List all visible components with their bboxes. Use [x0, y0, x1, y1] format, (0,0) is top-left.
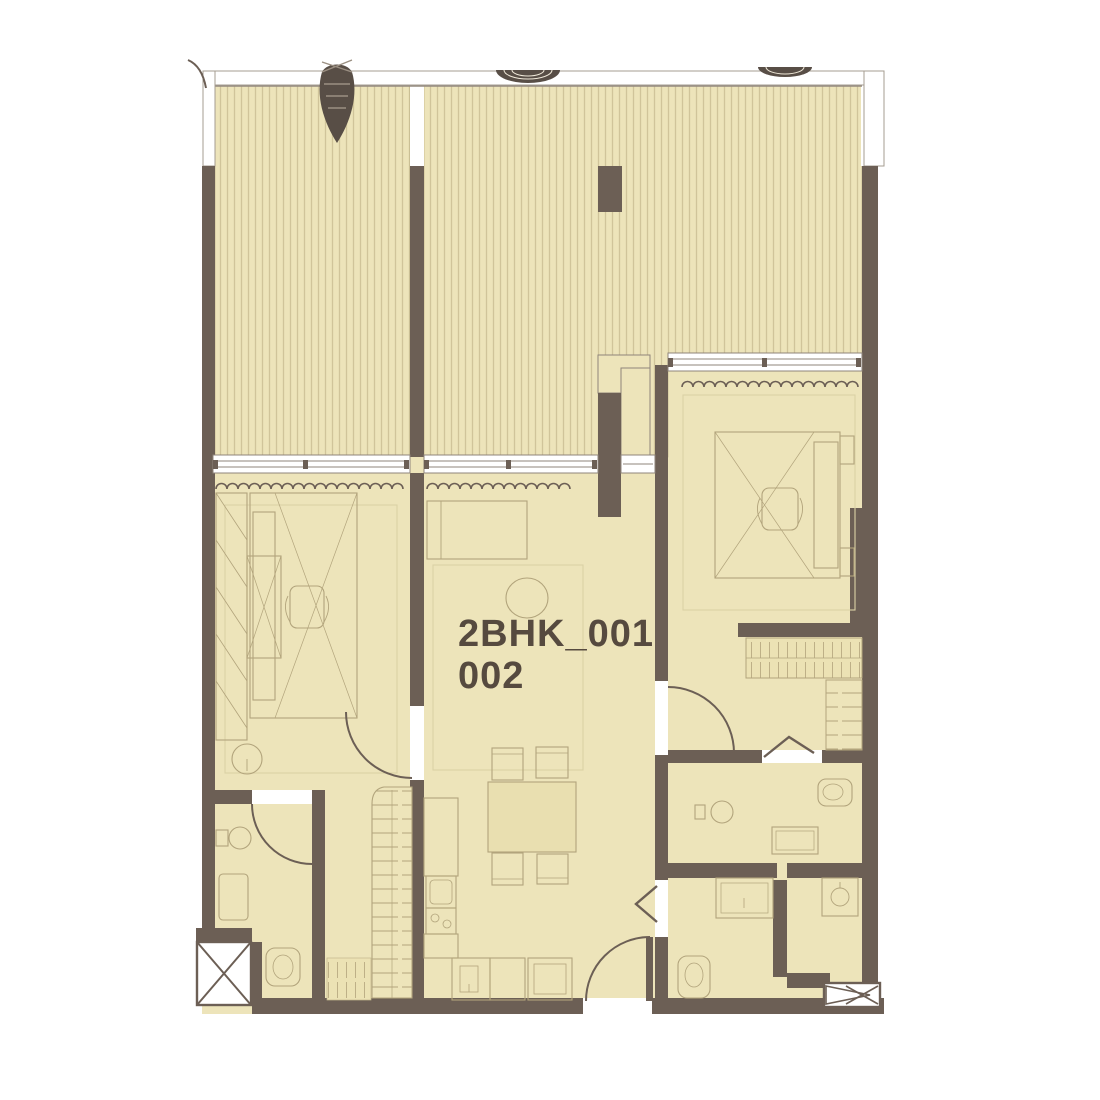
door-entrance-opening — [583, 998, 652, 1014]
door-bath-left-opening — [252, 790, 312, 804]
wall-bedroom1-upper — [410, 473, 424, 708]
wall-bath-master-bottom-right — [787, 863, 862, 878]
wall-balcony-divider — [410, 166, 424, 457]
dining-table — [488, 782, 576, 852]
door-entrance-leaf — [646, 937, 653, 1001]
wall-bedroom2-upper — [655, 365, 668, 683]
wall-bedroom2-bottom — [738, 623, 862, 637]
wall-left — [202, 166, 215, 930]
closet-shelf-side — [826, 680, 862, 750]
unit-label-line1: 2BHK_001 — [458, 613, 654, 655]
corridor-hatch — [327, 958, 371, 1000]
door-guest-opening — [655, 880, 668, 937]
door-bedroom1-opening — [410, 706, 424, 780]
wall-bath-master-top-right — [822, 750, 862, 763]
wall-entry-right — [655, 937, 668, 1000]
wall-bath-master-left — [655, 753, 668, 882]
balcony-left-deck — [215, 85, 410, 457]
wall-right-pilaster — [850, 508, 862, 623]
wall-bath-left-top — [213, 790, 252, 804]
wall-bath-left-right — [312, 790, 325, 1002]
parapet-right — [864, 71, 884, 166]
window-bedroom1 — [213, 455, 410, 473]
wall-right — [862, 166, 878, 1014]
wall-bath-master-top-left — [668, 750, 762, 763]
wall-above-shaft — [196, 928, 252, 942]
door-bedroom2-opening — [655, 681, 668, 755]
floor-plan-page: 2BHK_001 002 — [0, 0, 1100, 1100]
duct-box-side — [621, 368, 650, 457]
wall-guest-divider — [773, 880, 787, 977]
wall-bath-master-bottom-left — [658, 863, 777, 878]
floor-plan-canvas: 2BHK_001 002 — [0, 0, 1100, 1100]
balcony-divider-gap — [410, 84, 424, 166]
unit-label-line2: 002 — [458, 655, 524, 697]
balcony-column — [598, 166, 622, 212]
center-column — [598, 393, 621, 517]
